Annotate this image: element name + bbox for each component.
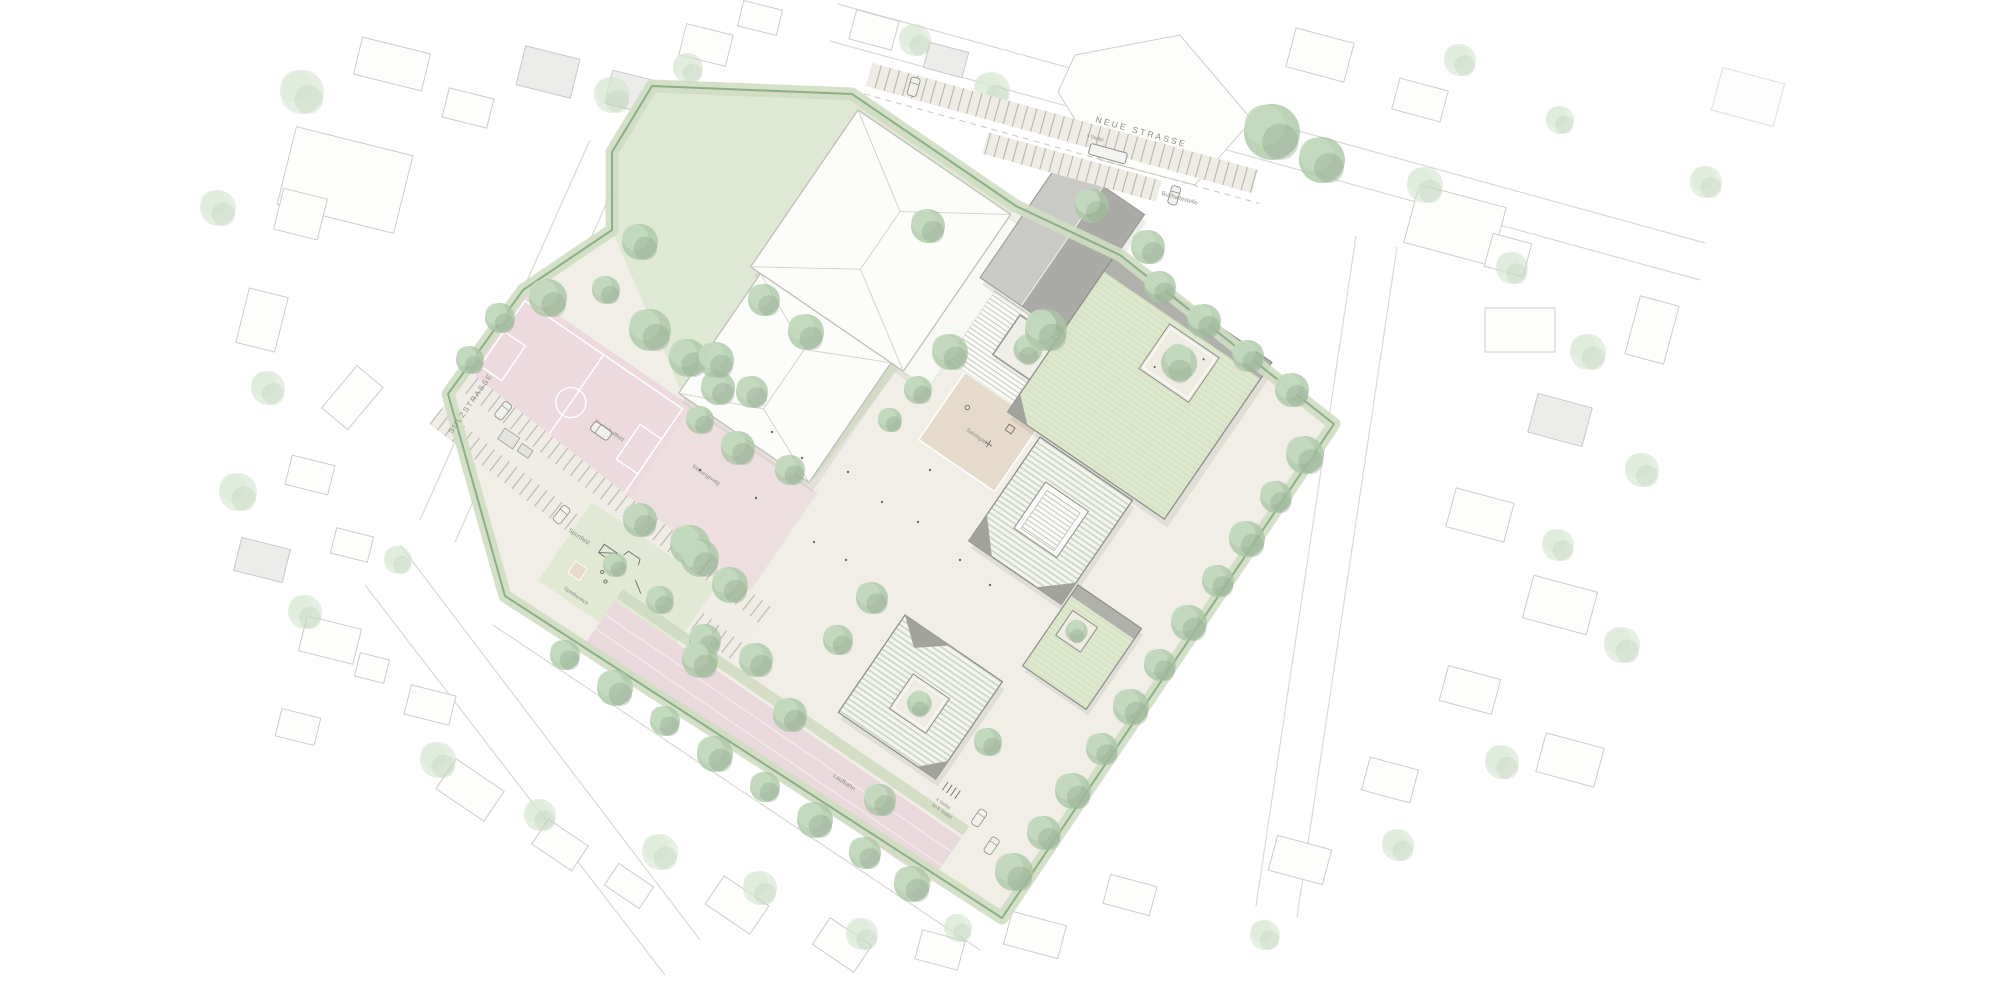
tree-icon (1025, 309, 1067, 351)
tree-icon (594, 77, 630, 113)
tree-icon (911, 209, 945, 243)
tree-icon (1546, 106, 1574, 134)
tree-icon (773, 698, 807, 732)
tree-icon (846, 918, 878, 950)
tree-icon (1690, 166, 1722, 198)
tree-icon (748, 284, 780, 316)
tree-icon (1496, 252, 1528, 284)
tree-icon (622, 224, 658, 260)
tree-icon (1382, 829, 1414, 861)
tree-icon (1144, 649, 1176, 681)
tree-icon (280, 70, 324, 114)
tree-icon (788, 314, 824, 350)
tree-icon (597, 670, 633, 706)
tree-icon (1027, 816, 1061, 850)
tree-icon (899, 24, 931, 56)
tree-icon (603, 553, 627, 577)
tree-icon (384, 546, 412, 574)
tree-icon (904, 376, 932, 404)
tree-icon (650, 706, 680, 736)
tree-icon (743, 871, 777, 905)
tree-icon (1086, 733, 1118, 765)
tree-icon (1407, 167, 1443, 203)
tree-icon (864, 784, 896, 816)
tree-icon (1055, 773, 1091, 809)
tree-icon (721, 431, 755, 465)
site-plan-canvas: Basketballfeld Rettungsweg Spielbereich (0, 0, 2000, 1000)
tree-icon (697, 736, 733, 772)
tree-icon (932, 334, 968, 370)
tree-icon (1604, 627, 1640, 663)
tree-icon (856, 582, 888, 614)
tree-icon (623, 503, 657, 537)
tree-icon (456, 346, 484, 374)
tree-icon (1171, 605, 1207, 641)
tree-icon (1542, 529, 1574, 561)
tree-icon (878, 408, 902, 432)
tree-icon (712, 567, 748, 603)
tree-icon (739, 643, 773, 677)
tree-icon (1113, 689, 1149, 725)
tree-icon (1202, 565, 1234, 597)
tree-icon (1232, 340, 1264, 372)
tree-icon (1286, 436, 1324, 474)
tree-icon (673, 53, 703, 83)
tree-icon (698, 342, 734, 378)
tree-icon (1275, 373, 1309, 407)
tree-icon (1244, 104, 1300, 160)
tree-icon (1570, 334, 1606, 370)
tree-icon (750, 772, 780, 802)
tree-icon (642, 834, 678, 870)
tree-icon (849, 837, 881, 869)
tree-icon (1485, 745, 1519, 779)
tree-icon (1187, 304, 1221, 338)
tree-icon (219, 473, 257, 511)
tree-icon (775, 455, 805, 485)
tree-icon (529, 279, 567, 317)
tree-icon (629, 309, 671, 351)
tree-icon (1229, 521, 1265, 557)
tree-icon (1260, 481, 1292, 513)
tree-icon (1299, 137, 1345, 183)
tree-icon (524, 799, 556, 831)
tree-icon (1075, 189, 1109, 223)
tree-icon (681, 539, 719, 577)
tree-icon (646, 586, 674, 614)
tree-icon (1144, 271, 1176, 303)
tree-icon (944, 914, 972, 942)
tree-icon (894, 866, 930, 902)
tree-icon (1625, 453, 1659, 487)
tree-icon (1131, 230, 1165, 264)
tree-icon (251, 371, 285, 405)
tree-icon (592, 276, 620, 304)
tree-icon (823, 625, 853, 655)
tree-icon (995, 853, 1033, 891)
tree-icon (200, 190, 236, 226)
tree-icon (686, 406, 714, 434)
tree-icon (797, 802, 833, 838)
tree-icon (420, 742, 456, 778)
tree-icon (736, 376, 768, 408)
tree-icon (682, 642, 718, 678)
tree-icon (974, 728, 1002, 756)
tree-icon (485, 303, 515, 333)
tree-icon (1250, 920, 1280, 950)
tree-icon (1444, 44, 1476, 76)
tree-icon (288, 595, 322, 629)
tree-icon (550, 640, 580, 670)
